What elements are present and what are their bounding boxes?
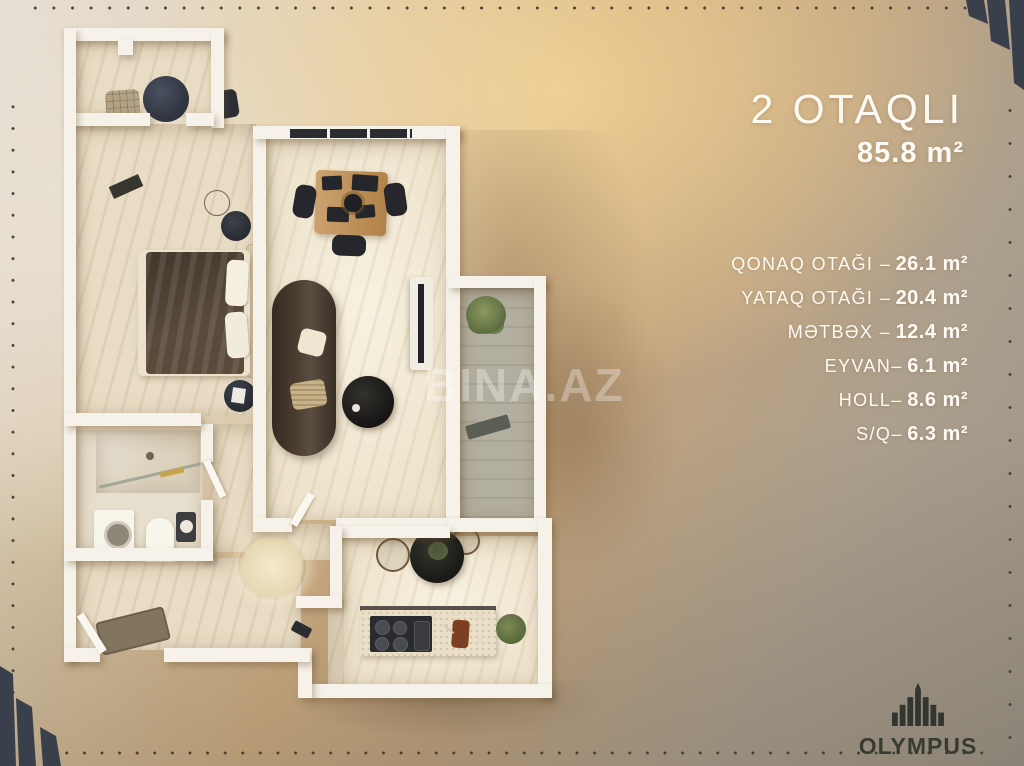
coffee-cup [352,404,360,412]
cutting-board [451,619,470,648]
burner [375,620,390,635]
wire-chair [376,538,410,572]
table-centerpiece [344,194,362,212]
wall-segment [64,28,76,661]
tv [418,284,424,363]
wire-lamp [204,190,230,216]
placemat [351,174,378,192]
burner [375,637,389,651]
wall-segment [64,28,224,41]
total-area: 85.8 m² [750,137,964,170]
wall-segment [296,596,342,608]
wall-segment [64,548,213,561]
room-label: HOLL– [839,390,903,410]
wall-segment [64,413,201,426]
wall-segment [330,526,450,538]
counter-plant [496,614,526,644]
room-row: YATAQ OTAĞI – 20.4 m² [731,281,968,315]
sofa [272,280,336,456]
room-value: 6.1 m² [907,355,968,377]
wall-segment [253,126,266,518]
title-block: 2 OTAQLI 85.8 m² [750,86,964,170]
coffee-table [342,376,394,428]
room-label: MƏTBƏX – [788,322,891,342]
wall-segment [64,648,100,662]
plan-shadow [540,280,680,580]
room-value: 6.3 m² [907,423,968,445]
wall-segment [118,40,133,55]
bed-pillow [225,259,249,306]
shower-drain [146,452,154,460]
wall-segment [253,518,292,532]
washer-drum [104,521,132,549]
room-value: 12.4 m² [896,321,968,343]
room-label: S/Q– [856,424,903,444]
wall-segment [534,276,546,532]
room-area-list: QONAQ OTAĞI – 26.1 m² YATAQ OTAĞI – 20.4… [731,247,968,451]
kitchen-floor [328,600,344,686]
wall-segment [448,276,546,288]
plan-title: 2 OTAQLI [750,86,964,133]
sink [180,520,193,533]
shaggy-rug [238,534,306,600]
room-row: S/Q– 6.3 m² [731,417,968,451]
wall-segment [186,113,214,126]
room-row: EYVAN– 6.1 m² [731,349,968,383]
olympus-logo-icon [887,676,949,726]
book [231,387,246,404]
living-room-window [290,129,412,138]
room-value: 20.4 m² [896,287,968,309]
dining-chair [332,234,367,256]
room-row: MƏTBƏX – 12.4 m² [731,315,968,349]
flyer-canvas: BINA.AZ 2 OTAQLI 85.8 m² QONAQ OTAĞI – 2… [0,0,1024,766]
wall-segment [330,526,342,602]
room-value: 8.6 m² [907,389,968,411]
brand-block: OLYMPUS [828,676,1008,760]
room-label: YATAQ OTAĞI – [741,288,891,308]
wall-segment [310,684,552,698]
placemat [322,175,343,190]
balcony-plant [466,296,506,334]
room-label: EYVAN– [825,356,903,376]
wall-segment [446,126,460,530]
room-value: 26.1 m² [896,253,968,275]
wall-segment [164,648,310,662]
wall-segment [201,424,213,462]
room-label: QONAQ OTAĞI – [731,254,891,274]
wall-segment [64,113,150,126]
burner [393,637,408,652]
kitchen-sink [414,621,430,651]
table-plant [428,542,448,560]
room-row: QONAQ OTAĞI – 26.1 m² [731,247,968,281]
wall-segment [448,518,548,532]
nightstand [221,211,251,241]
wall-segment [538,518,552,698]
room-row: HOLL– 8.6 m² [731,383,968,417]
bed-pillow [224,311,249,358]
brand-name: OLYMPUS [828,733,1008,760]
burner [393,621,407,635]
